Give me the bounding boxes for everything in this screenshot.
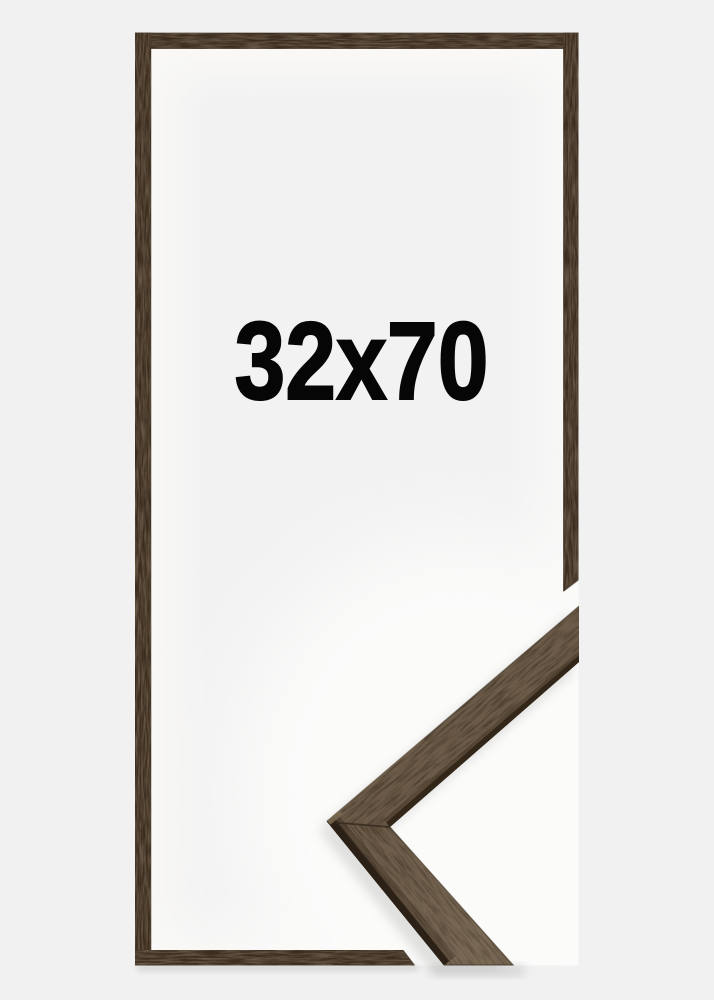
svg-text:32x70: 32x70 (235, 300, 489, 423)
